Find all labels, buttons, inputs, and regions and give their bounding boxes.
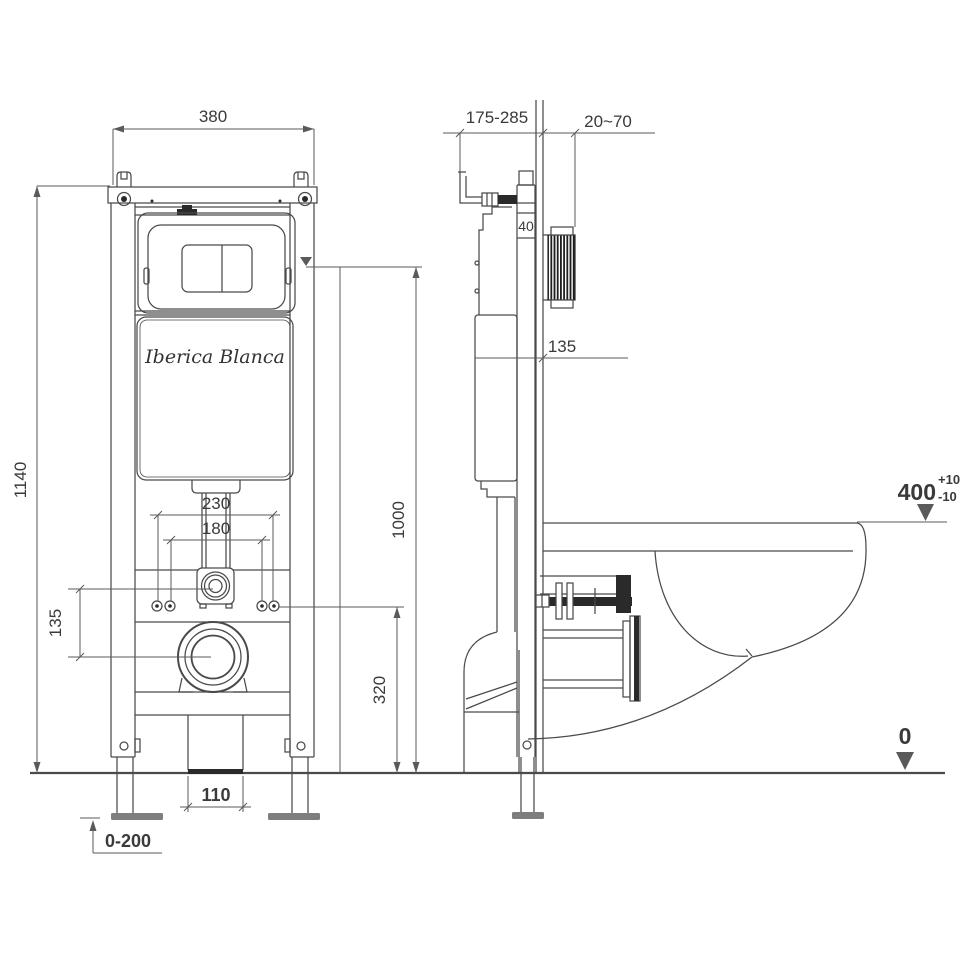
dim-rail-depth: 40 bbox=[518, 218, 534, 234]
dim-flush-height: 1000 bbox=[300, 257, 422, 773]
dim-bracket-depth-label: 175-285 bbox=[466, 108, 528, 127]
right-leg bbox=[268, 739, 320, 820]
dim-tank-level: 135 bbox=[475, 337, 628, 362]
floor-datum-label: 0 bbox=[899, 723, 912, 749]
left-foot-plate bbox=[111, 813, 163, 820]
conduit-hatched-block bbox=[548, 235, 575, 300]
dim-bolt-span-inner-label: 180 bbox=[202, 519, 230, 538]
front-view-frame bbox=[108, 172, 317, 757]
tank-outline bbox=[137, 317, 293, 480]
rod-washer-2 bbox=[567, 583, 573, 619]
dim-rim-height-label: 400 bbox=[898, 479, 936, 505]
left-leg bbox=[111, 739, 163, 820]
technical-drawing-page: Iberica Blanca bbox=[0, 0, 970, 970]
side-foot-plate bbox=[512, 812, 544, 819]
dim-frame-height-label: 1140 bbox=[11, 462, 30, 499]
dim-outlet-width-label: 110 bbox=[201, 785, 230, 805]
flush-plate-face bbox=[148, 225, 285, 309]
top-crossbar bbox=[108, 187, 317, 203]
dim-frame-height: 1140 bbox=[11, 186, 110, 773]
mounting-rod bbox=[536, 575, 632, 619]
toilet-bowl bbox=[528, 523, 866, 739]
flush-plate-frame bbox=[138, 213, 295, 313]
flush-plate bbox=[135, 213, 295, 315]
dim-outlet-width: 110 bbox=[180, 776, 251, 812]
flush-buttons bbox=[182, 245, 252, 292]
flush-conduit bbox=[543, 227, 575, 308]
floor-datum-triangle-icon bbox=[896, 752, 914, 770]
tank-inner-line bbox=[140, 320, 290, 477]
brand-logo: Iberica Blanca bbox=[144, 346, 285, 368]
dim-tank-level-label: 135 bbox=[548, 337, 576, 356]
side-rail bbox=[517, 171, 535, 757]
dim-bracket-depth: 175-285 20~70 bbox=[443, 108, 655, 227]
outlet-connector bbox=[543, 616, 640, 701]
dim-rim-tol-plus: +10 bbox=[938, 472, 960, 487]
side-view bbox=[458, 100, 866, 819]
right-foot-plate bbox=[268, 813, 320, 820]
right-hook-notch bbox=[298, 172, 304, 179]
cistern-tank: Iberica Blanca bbox=[137, 317, 293, 480]
side-tank bbox=[475, 315, 517, 632]
rod-washer-1 bbox=[556, 583, 562, 619]
dim-feet-range: 0-200 bbox=[80, 818, 162, 853]
bracket-bolt-rod bbox=[498, 195, 517, 204]
bracket-bolt-head bbox=[482, 193, 498, 206]
dim-bolt-span-outer-label: 230 bbox=[202, 494, 230, 513]
dim-rail-depth-label: 40 bbox=[518, 218, 534, 234]
fill-valve-housing bbox=[479, 207, 512, 315]
dim-frame-width-label: 380 bbox=[199, 107, 227, 126]
dim-offset-label: 135 bbox=[46, 609, 65, 637]
installation-drawing: Iberica Blanca bbox=[0, 0, 970, 970]
dim-frame-width: 380 bbox=[113, 107, 314, 185]
dim-rim-height: 400 +10 -10 bbox=[857, 472, 960, 522]
rim-datum-triangle-icon bbox=[917, 504, 934, 521]
dim-floor-datum: 0 bbox=[896, 723, 914, 770]
outlet-elbow bbox=[464, 632, 519, 773]
water-inlet-connector bbox=[197, 568, 234, 608]
dim-inlet-outlet-offset: 135 bbox=[46, 585, 213, 661]
outlet-box-base bbox=[188, 769, 243, 774]
dim-wall-finish-label: 20~70 bbox=[584, 112, 632, 131]
dim-rim-tol-minus: -10 bbox=[938, 489, 957, 504]
dim-bolt-height-label: 320 bbox=[370, 676, 389, 704]
wall-bracket bbox=[458, 172, 517, 206]
dim-feet-range-label: 0-200 bbox=[105, 831, 151, 851]
left-hook-notch bbox=[121, 172, 127, 179]
rod-nut bbox=[616, 575, 631, 613]
dim-flush-height-label: 1000 bbox=[389, 501, 408, 539]
tank-neck bbox=[192, 480, 240, 493]
